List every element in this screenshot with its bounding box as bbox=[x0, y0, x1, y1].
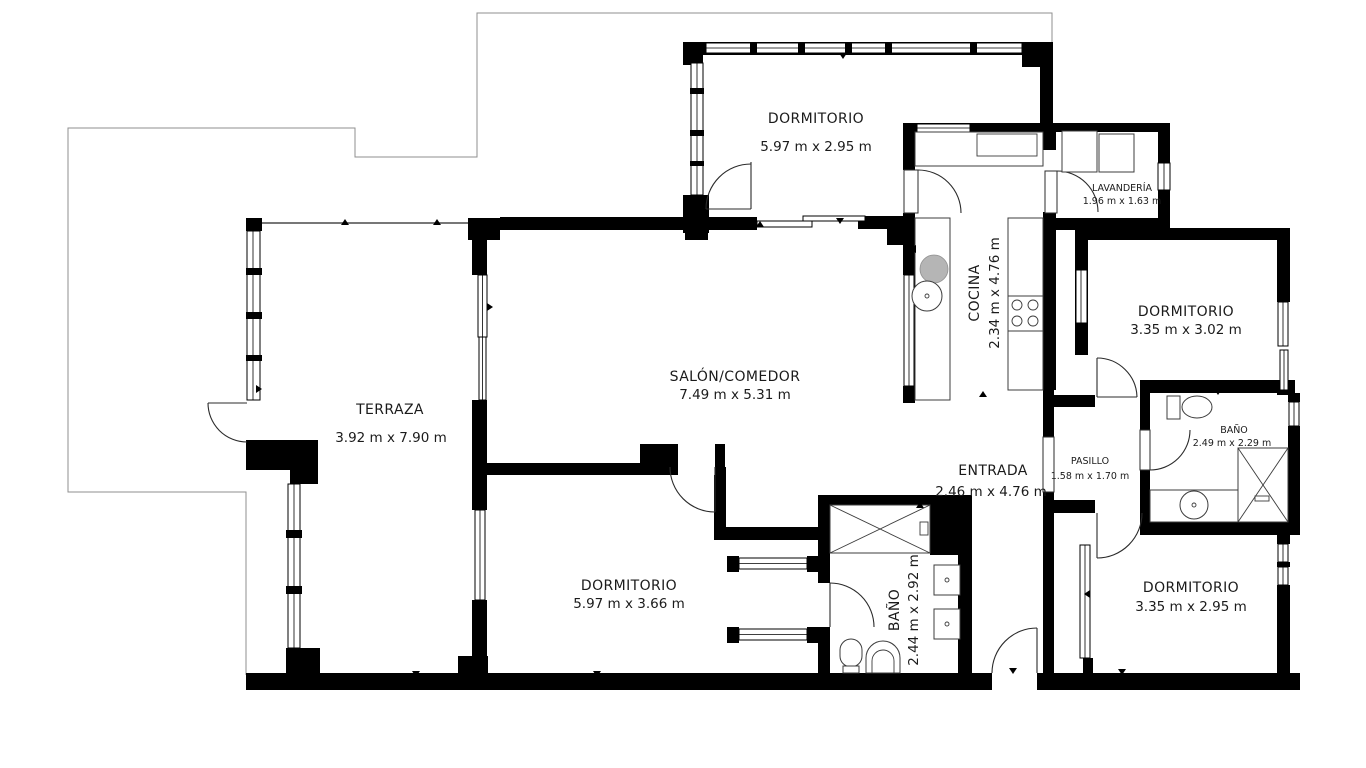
dims-pasillo: 1.58 m x 1.70 m bbox=[1051, 471, 1130, 482]
shower-right bbox=[1238, 448, 1288, 522]
dims-dormitorio-top: 5.97 m x 2.95 m bbox=[760, 139, 872, 155]
door-bedroom-right-top bbox=[1097, 358, 1137, 397]
label-entrada: ENTRADA bbox=[958, 463, 1028, 479]
label-dormitorio-top: DORMITORIO bbox=[768, 111, 864, 127]
label-lavanderia: LAVANDERÍA bbox=[1092, 182, 1153, 194]
label-dormitorio-bottom: DORMITORIO bbox=[581, 578, 677, 594]
kitchen-stove bbox=[1008, 296, 1043, 331]
sink-right bbox=[1150, 490, 1238, 522]
door-bath-bottom bbox=[830, 583, 874, 627]
dims-dormitorio-right-top: 3.35 m x 3.02 m bbox=[1130, 322, 1242, 338]
label-bano-bottom: BAÑO bbox=[886, 589, 903, 631]
label-dormitorio-right-top: DORMITORIO bbox=[1138, 304, 1234, 320]
dims-dormitorio-bottom: 5.97 m x 3.66 m bbox=[573, 596, 685, 612]
door-kitchen bbox=[904, 170, 961, 213]
label-salon: SALÓN/COMEDOR bbox=[670, 367, 801, 385]
label-dormitorio-right-bottom: DORMITORIO bbox=[1143, 580, 1239, 596]
door-top-bedroom bbox=[706, 162, 751, 209]
door-bedroom-right-bottom bbox=[1097, 513, 1142, 558]
windows bbox=[246, 42, 1299, 658]
dims-lavanderia: 1.96 m x 1.63 m bbox=[1083, 196, 1162, 207]
label-pasillo: PASILLO bbox=[1071, 456, 1109, 467]
dims-bano-bottom: 2.44 m x 2.92 m bbox=[906, 554, 922, 666]
dims-salon: 7.49 m x 5.31 m bbox=[679, 387, 791, 403]
floor-plan-page: DORMITORIO 5.97 m x 2.95 m LAVANDERÍA 1.… bbox=[0, 0, 1366, 768]
vanity-bottom bbox=[934, 565, 960, 639]
floor-plan-canvas: DORMITORIO 5.97 m x 2.95 m LAVANDERÍA 1.… bbox=[0, 0, 1366, 768]
label-terraza: TERRAZA bbox=[355, 402, 424, 418]
toilet-right bbox=[1167, 396, 1212, 419]
kitchen-appliance-circle bbox=[920, 255, 948, 283]
label-bano-right: BAÑO bbox=[1220, 425, 1248, 436]
bidet-bottom bbox=[840, 639, 862, 673]
toilet-bottom bbox=[866, 641, 900, 673]
door-terrace bbox=[208, 403, 247, 442]
door-entry bbox=[992, 628, 1037, 673]
laundry-machines bbox=[1062, 131, 1134, 172]
dims-terraza: 3.92 m x 7.90 m bbox=[335, 430, 447, 446]
label-cocina: COCINA bbox=[967, 264, 983, 321]
door-bath-right bbox=[1140, 430, 1190, 470]
dims-entrada: 2.46 m x 4.76 m bbox=[935, 484, 1047, 500]
shower-bottom bbox=[830, 505, 930, 553]
dims-bano-right: 2.49 m x 2.29 m bbox=[1193, 438, 1272, 449]
kitchen-sink bbox=[912, 281, 942, 311]
dims-dormitorio-right-bottom: 3.35 m x 2.95 m bbox=[1135, 599, 1247, 615]
dims-cocina: 2.34 m x 4.76 m bbox=[987, 237, 1003, 349]
